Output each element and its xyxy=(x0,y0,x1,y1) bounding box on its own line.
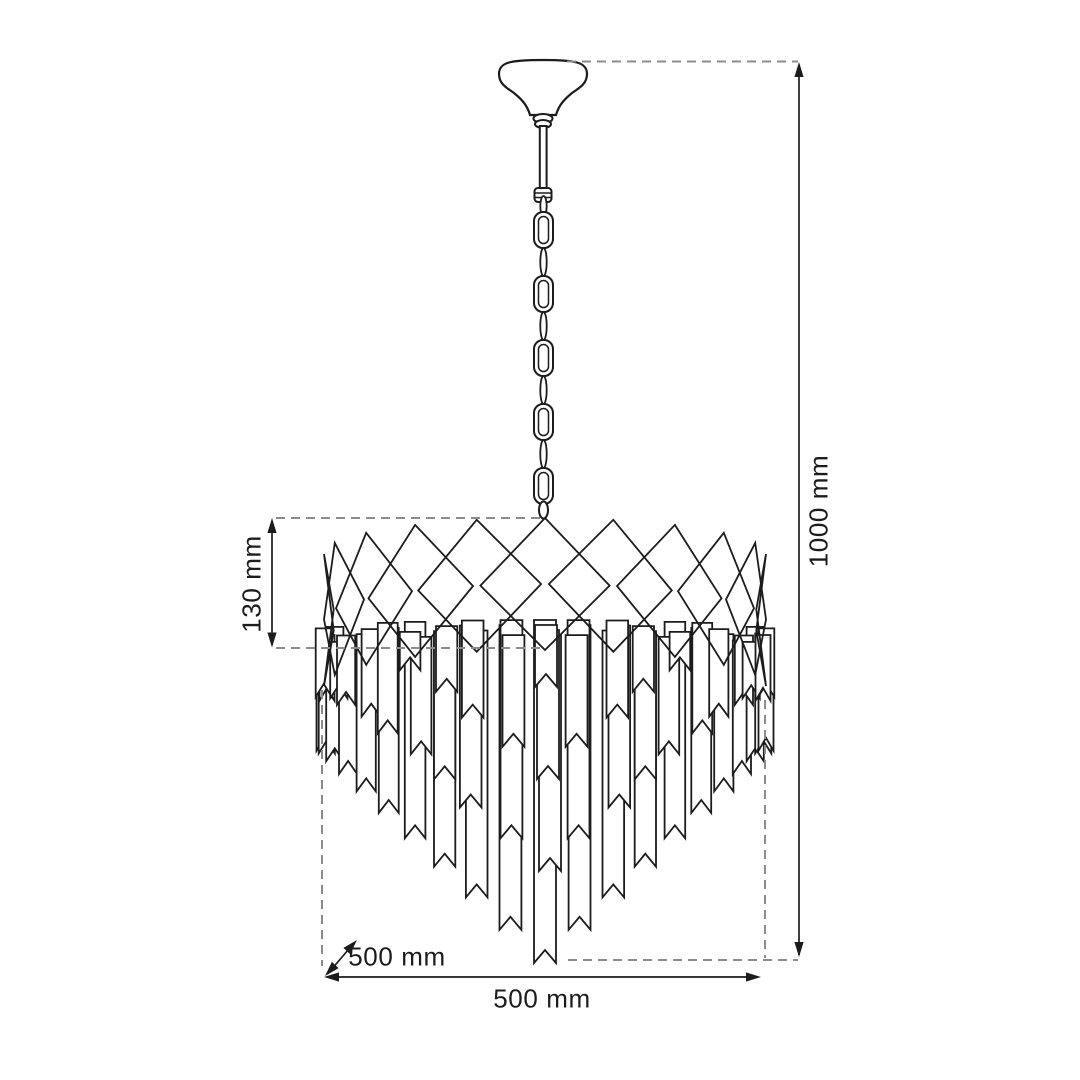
ceiling-canopy xyxy=(499,60,587,115)
crystal-cascade xyxy=(316,620,775,963)
crystal-bar xyxy=(709,629,728,717)
canopy-and-chain xyxy=(499,60,587,519)
arrowhead xyxy=(794,942,803,957)
crystal-bar xyxy=(462,621,484,718)
chain-connector-link xyxy=(540,376,546,404)
suspension-rod xyxy=(540,126,547,189)
crystal-bar xyxy=(503,635,525,747)
diagram-canvas: 1000 mm 130 mm 500 mm 500 mm xyxy=(0,0,1080,1080)
dimension-label-width: 500 mm xyxy=(493,984,591,1015)
crystal-bar xyxy=(607,621,629,718)
chain-connector-link xyxy=(540,312,546,340)
arrowhead xyxy=(267,633,276,648)
crystal-bar xyxy=(378,623,398,733)
chain-connector-link xyxy=(540,248,546,276)
chain-connector-link xyxy=(540,440,546,468)
crystal-bar xyxy=(566,635,588,747)
dimension-label-depth: 500 mm xyxy=(348,942,446,973)
arrowhead xyxy=(267,518,276,533)
arrowhead xyxy=(746,972,761,981)
dimension-label-total-height: 1000 mm xyxy=(804,455,835,568)
dimension-label-crown-height: 130 mm xyxy=(237,535,268,633)
chain-connector-link xyxy=(539,502,548,519)
chandelier-drawing xyxy=(0,0,1080,1080)
arrowhead xyxy=(794,62,803,77)
